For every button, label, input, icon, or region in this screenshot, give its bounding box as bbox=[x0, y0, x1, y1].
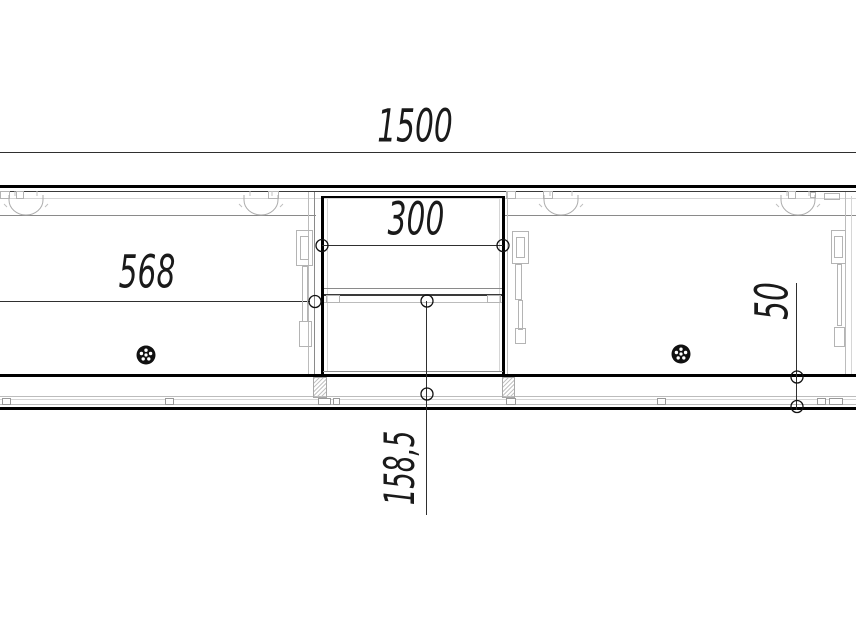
hinge-cup-icon bbox=[9, 195, 43, 215]
dimension-label-middle-width: 300 bbox=[388, 197, 445, 242]
hinge-side-tick bbox=[580, 204, 583, 207]
dim-endpoint-circle bbox=[309, 296, 321, 308]
hinge-side-tick bbox=[45, 204, 48, 207]
dimension-label-niche-height: 158,5 bbox=[379, 431, 421, 506]
hinge-cup-icon bbox=[781, 195, 815, 215]
hinge-side-tick bbox=[539, 204, 542, 207]
dim-endpoint-circle bbox=[421, 295, 433, 307]
dim-endpoint-circle bbox=[316, 240, 328, 252]
drawing-symbols-layer bbox=[0, 0, 856, 642]
dimension-label-overall-width: 1500 bbox=[377, 104, 453, 149]
dim-endpoint-circle bbox=[791, 371, 803, 383]
dimension-label-left-door-width: 568 bbox=[119, 250, 176, 295]
dimension-label-plinth-height: 50 bbox=[750, 282, 795, 320]
hinge-side-tick bbox=[239, 204, 242, 207]
dim-endpoint-circle bbox=[791, 401, 803, 413]
hinge-cup-icon bbox=[244, 195, 278, 215]
technical-drawing-canvas: 1500 300 568 50 158,5 bbox=[0, 0, 856, 642]
left-door-knob-icon bbox=[137, 346, 156, 365]
hinge-side-tick bbox=[817, 204, 820, 207]
hinge-side-tick bbox=[4, 204, 7, 207]
hinge-side-tick bbox=[280, 204, 283, 207]
hinge-cup-icon bbox=[544, 195, 578, 215]
hinge-side-tick bbox=[776, 204, 779, 207]
right-door-knob-icon bbox=[672, 345, 691, 364]
dim-endpoint-circle bbox=[421, 388, 433, 400]
dim-endpoint-circle bbox=[497, 240, 509, 252]
